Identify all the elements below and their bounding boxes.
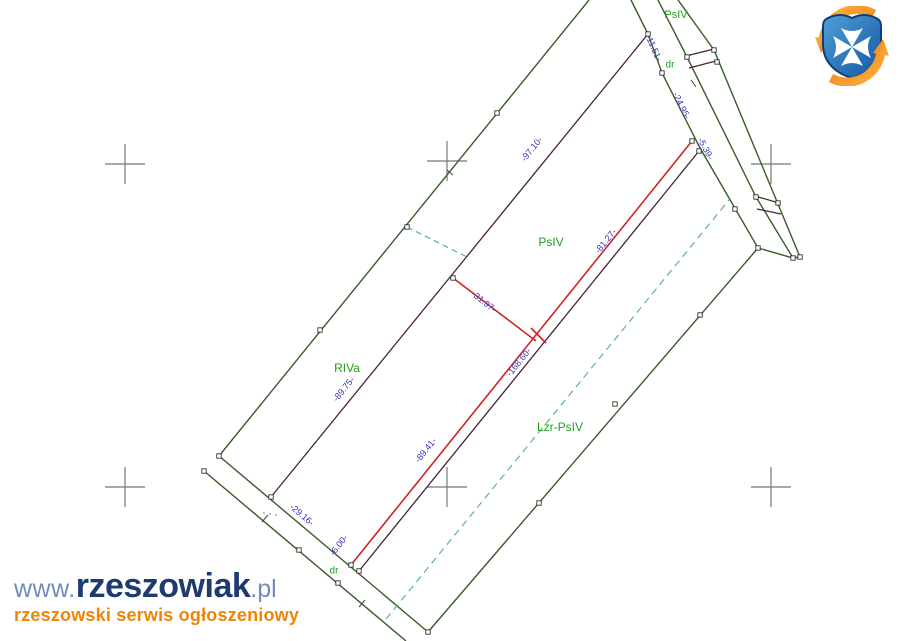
boundary-point-marker: [690, 139, 694, 143]
watermark-site-name: www.rzeszowiak.pl: [14, 569, 299, 603]
boundary-point-marker: [318, 328, 322, 332]
boundary-point-marker: [754, 195, 758, 199]
boundary-point-marker: [756, 246, 760, 250]
boundary-point-marker: [202, 469, 206, 473]
boundary-point-marker: [715, 60, 719, 64]
parcel-label: PsIV: [538, 235, 563, 249]
grid-cross: [427, 467, 467, 507]
measurement-label: -81.27-: [593, 227, 619, 255]
boundary-point-marker: [426, 630, 430, 634]
road-rung-4: [757, 209, 781, 214]
boundary-point-marker: [451, 276, 455, 280]
boundary-tick: [691, 80, 696, 87]
measurement-label: -31.97-: [470, 289, 499, 314]
boundary-point-marker: [712, 48, 716, 52]
road-ne-edge-c: [678, 0, 800, 257]
parcel-label: PsIV: [664, 9, 688, 21]
faint-dot: [269, 513, 271, 515]
faint-dot: [275, 514, 277, 516]
road-rung-1: [686, 49, 714, 56]
rzeszowiak-watermark: www.rzeszowiak.pl rzeszowski serwis ogło…: [14, 569, 299, 624]
outer-nw-boundary: [219, 0, 589, 456]
boundary-point-marker: [297, 548, 301, 552]
grid-cross: [105, 467, 145, 507]
measurement-label: -97.10-: [519, 135, 545, 163]
watermark-name: rzeszowiak: [76, 567, 251, 605]
boundary-point-marker: [217, 454, 221, 458]
boundary-point-marker: [660, 71, 664, 75]
grid-cross: [751, 467, 791, 507]
boundary-point-marker: [357, 569, 361, 573]
rzeszow-crest-logo: [810, 6, 894, 86]
parcel-label: RIVa: [334, 361, 360, 375]
boundary-point-marker: [798, 255, 802, 259]
road-rung-2: [689, 61, 716, 68]
boundary-point-marker: [495, 111, 499, 115]
parcel-label: Lzr-PsIV: [537, 420, 583, 434]
grid-cross: [751, 144, 791, 184]
outer-se-boundary: [428, 248, 758, 632]
watermark-www: www.: [14, 575, 76, 603]
inner-boundary-parallel: [359, 151, 699, 571]
cadastral-map: -11.51--24.95--5.39--97.10--81.27--31.97…: [0, 0, 900, 641]
boundary-point-marker: [336, 581, 340, 585]
boundary-point-marker: [791, 256, 795, 260]
boundary-point-marker: [698, 313, 702, 317]
measurement-label: -89.75-: [331, 375, 357, 403]
boundary-point-marker: [269, 495, 273, 499]
dashed-connector: [407, 227, 467, 257]
division-red-tick: [531, 328, 546, 343]
boundary-point-marker: [405, 225, 409, 229]
faint-dot: [263, 512, 265, 514]
grid-cross: [105, 144, 145, 184]
boundary-point-marker: [537, 501, 541, 505]
measurement-label: -29.16-: [288, 502, 316, 528]
parcel-label: dr: [330, 566, 340, 577]
measurement-label: -11.51-: [644, 33, 664, 63]
dashed-long: [386, 200, 729, 619]
boundary-point-marker: [685, 55, 689, 59]
parcel-label: dr: [666, 60, 676, 71]
watermark-tagline: rzeszowski serwis ogłoszeniowy: [14, 606, 299, 624]
road-ne-edge-b: [658, 0, 793, 258]
measurement-label: -6.00-: [327, 533, 349, 558]
measurement-label: -24.95-: [671, 91, 692, 121]
boundary-point-marker: [349, 563, 353, 567]
boundary-point-marker: [733, 207, 737, 211]
survey-map-page: -11.51--24.95--5.39--97.10--81.27--31.97…: [0, 0, 900, 641]
boundary-point-marker: [613, 402, 617, 406]
boundary-tick: [262, 515, 268, 522]
boundary-point-marker: [776, 201, 780, 205]
watermark-tld: .pl: [250, 575, 276, 603]
